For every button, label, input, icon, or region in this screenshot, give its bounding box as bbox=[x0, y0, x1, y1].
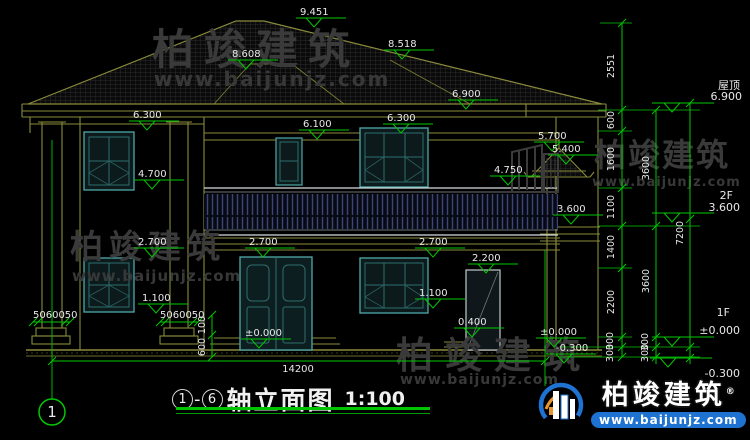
registered-mark: ® bbox=[726, 387, 735, 397]
dim-step-600: 600 bbox=[197, 338, 208, 356]
dim-chain-connectors bbox=[560, 23, 700, 357]
dim-col-base-left: 5060050 bbox=[33, 310, 78, 321]
brand-logo-name: 柏竣建筑 bbox=[602, 380, 726, 411]
window-center-2f bbox=[276, 138, 302, 185]
elev-hip-right: 8.518 bbox=[388, 39, 417, 50]
brand-logo-text: 柏竣建筑® www.baijunjz.com bbox=[591, 382, 746, 427]
dim-step-100: 100 bbox=[197, 316, 208, 334]
chain-total-7200: 7200 bbox=[675, 221, 686, 245]
chain-1400: 1400 bbox=[606, 235, 617, 259]
elev-f2-window-top: 6.300 bbox=[387, 113, 416, 124]
axis-bubble-label: 1 bbox=[47, 403, 57, 421]
floor-chain-3600b: 3600 bbox=[641, 269, 652, 293]
balcony-railing bbox=[204, 188, 558, 235]
title-text: 轴立面图 bbox=[227, 381, 335, 417]
dim-chain-lines bbox=[622, 23, 690, 364]
axis-bubble-1: 1 bbox=[39, 399, 65, 425]
column-left-plinth-2 bbox=[32, 336, 70, 344]
elev-zero-main: ±0.000 bbox=[245, 328, 282, 339]
floor-chain-300b: 300 bbox=[640, 344, 651, 362]
floor-chain-3600a: 3600 bbox=[641, 156, 652, 180]
title-underline-thick bbox=[176, 407, 430, 410]
brand-logo-icon bbox=[536, 379, 586, 431]
watermark-bottom-brand: 柏竣建筑 bbox=[396, 334, 592, 377]
chain-2551: 2551 bbox=[606, 54, 617, 78]
elev-mid-eave: 6.100 bbox=[303, 119, 332, 130]
chain-600: 600 bbox=[606, 111, 617, 129]
brand-logo: 柏竣建筑® www.baijunjz.com bbox=[536, 379, 746, 431]
elev-peak: 9.451 bbox=[300, 7, 329, 18]
elev-ground-right: -0.300 bbox=[556, 343, 588, 354]
window-left-2f bbox=[84, 132, 134, 190]
cad-viewport: 柏竣建筑 www.baijunjz.com 柏竣建筑 www.baijunjz.… bbox=[0, 0, 750, 440]
elev-porch-eave: 5.400 bbox=[552, 144, 581, 155]
legend-1f-value: ±0.000 bbox=[699, 324, 740, 337]
elev-hip-left: 8.608 bbox=[232, 49, 261, 60]
chain-2200: 2200 bbox=[606, 290, 617, 314]
elev-lintel-right: 2.700 bbox=[419, 237, 448, 248]
elevation-drawing: 柏竣建筑 www.baijunjz.com 柏竣建筑 www.baijunjz.… bbox=[0, 0, 750, 440]
elev-porch-beam: 4.750 bbox=[494, 165, 523, 176]
elev-balcony-floor: 3.600 bbox=[557, 204, 586, 215]
legend-1f-label: 1F bbox=[717, 306, 730, 319]
column-mid-plinth-2 bbox=[160, 336, 198, 344]
chain-1100: 1100 bbox=[606, 195, 617, 219]
elev-sill-left: 1.100 bbox=[142, 293, 171, 304]
window-right-2f bbox=[360, 128, 428, 187]
column-mid-plinth-1 bbox=[164, 328, 194, 336]
wing-floor-band bbox=[540, 227, 600, 241]
chain-300b: 300 bbox=[605, 344, 616, 362]
title-underline-thin bbox=[176, 413, 430, 414]
elev-right-eave: 6.900 bbox=[452, 89, 481, 100]
elev-lintel-left: 2.700 bbox=[138, 237, 167, 248]
chain-1600: 1600 bbox=[606, 147, 617, 171]
elev-lintel-center: 2.700 bbox=[249, 237, 278, 248]
legend-2f-value: 3.600 bbox=[709, 201, 741, 214]
elev-porch-ridge: 5.700 bbox=[538, 131, 567, 142]
watermark-top-url: www.baijunjz.com bbox=[154, 67, 390, 91]
elev-sill-right: 1.100 bbox=[419, 288, 448, 299]
column-left-plinth-1 bbox=[36, 328, 66, 336]
dim-total-width: 14200 bbox=[282, 364, 314, 375]
window-right-1f bbox=[360, 258, 428, 313]
elev-zero-right: ±0.000 bbox=[540, 327, 577, 338]
elev-f2-left-window-top: 4.700 bbox=[138, 169, 167, 180]
elev-left-eave: 6.300 bbox=[133, 110, 162, 121]
drawing-title: 1 - 6 轴立面图 1:100 bbox=[172, 381, 405, 417]
elev-side-door-top: 2.200 bbox=[472, 253, 501, 264]
railing-slats bbox=[204, 194, 558, 229]
elev-side-step: 0.400 bbox=[458, 317, 487, 328]
brand-logo-url: www.baijunjz.com bbox=[591, 412, 746, 428]
legend-roof-value: 6.900 bbox=[711, 90, 743, 103]
watermark-left-url: www.baijunjz.com bbox=[72, 267, 241, 285]
